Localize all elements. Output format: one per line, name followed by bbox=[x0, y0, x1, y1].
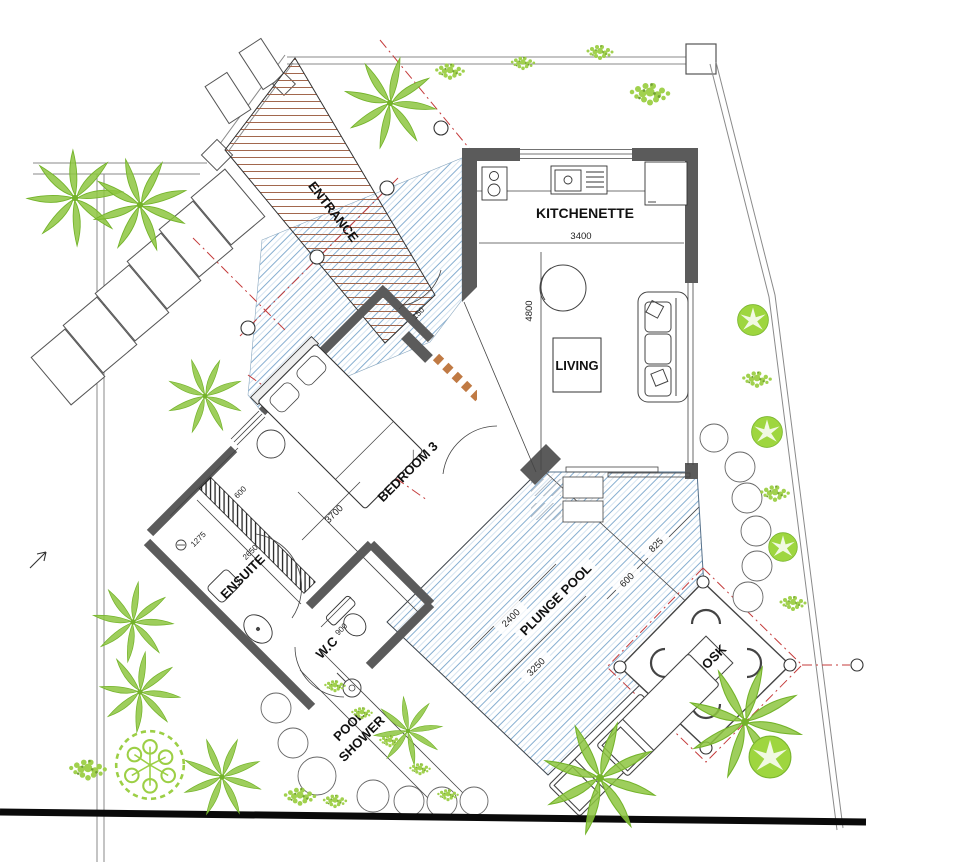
wardrobe-pocket-wall bbox=[199, 477, 315, 593]
living-window bbox=[688, 283, 693, 465]
north-arrow-mark bbox=[30, 552, 46, 568]
roof-post bbox=[434, 121, 448, 135]
floor-plan-drawing: PLUNGE POOL 2400 3250 600 825 ENTRANCE bbox=[0, 0, 964, 862]
kitchen-window bbox=[520, 150, 632, 159]
pool-step-hatch bbox=[531, 503, 561, 520]
roof-post bbox=[241, 321, 255, 335]
pool-step bbox=[563, 501, 603, 522]
bedside-table bbox=[257, 430, 285, 458]
roof-post bbox=[380, 181, 394, 195]
kitchenette-label: KITCHENETTE bbox=[536, 205, 634, 221]
kitchenette-living-block: LIVING KITCHENETTE 3400 4800 bbox=[443, 148, 698, 485]
pool-step bbox=[563, 477, 603, 498]
kitchenette-dim: 3400 bbox=[570, 231, 591, 242]
cooktop bbox=[482, 167, 507, 200]
living-label: LIVING bbox=[555, 358, 598, 373]
road-boundary bbox=[0, 812, 866, 822]
fridge bbox=[645, 162, 687, 205]
floor-plan-canvas: PLUNGE POOL 2400 3250 600 825 ENTRANCE bbox=[0, 0, 964, 862]
living-dim: 4800 bbox=[524, 300, 535, 321]
roof-post bbox=[310, 250, 324, 264]
shower-dim: 1275 bbox=[189, 529, 208, 548]
shower-drain bbox=[176, 540, 186, 550]
boundary-gate-post bbox=[201, 139, 232, 170]
wardrobe-dim: 600 bbox=[232, 484, 248, 500]
bedroom-dim: 3700 bbox=[323, 503, 346, 526]
kitchen-sink bbox=[551, 166, 607, 194]
wall bbox=[462, 148, 477, 302]
